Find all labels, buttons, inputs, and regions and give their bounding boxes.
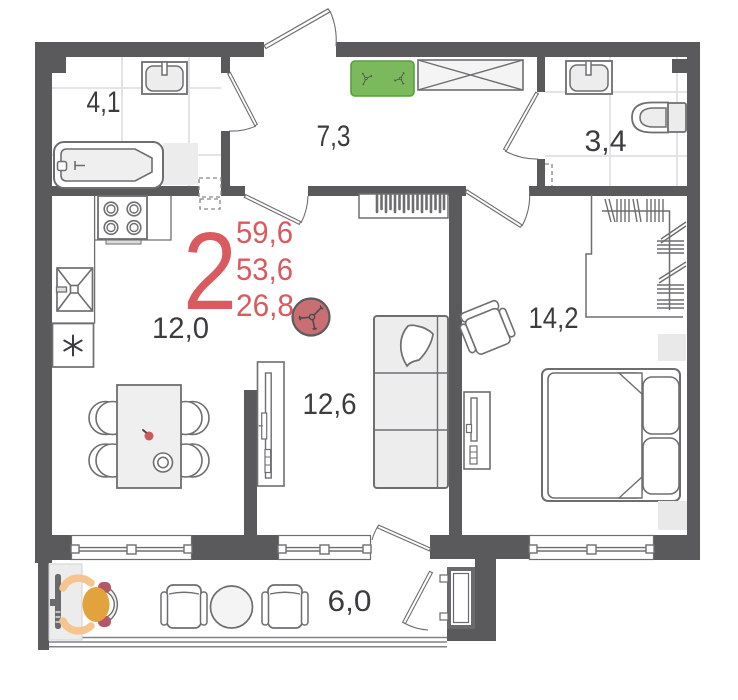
svg-text:7,3: 7,3 <box>317 120 351 153</box>
svg-text:12,6: 12,6 <box>303 388 357 421</box>
svg-text:26,8: 26,8 <box>236 287 294 323</box>
svg-text:14,2: 14,2 <box>529 302 579 335</box>
svg-text:4,1: 4,1 <box>87 86 121 119</box>
svg-text:6,0: 6,0 <box>328 585 372 618</box>
svg-text:59,6: 59,6 <box>236 214 293 250</box>
svg-text:53,6: 53,6 <box>236 251 293 287</box>
svg-text:2: 2 <box>183 210 237 333</box>
svg-text:3,4: 3,4 <box>585 125 627 158</box>
